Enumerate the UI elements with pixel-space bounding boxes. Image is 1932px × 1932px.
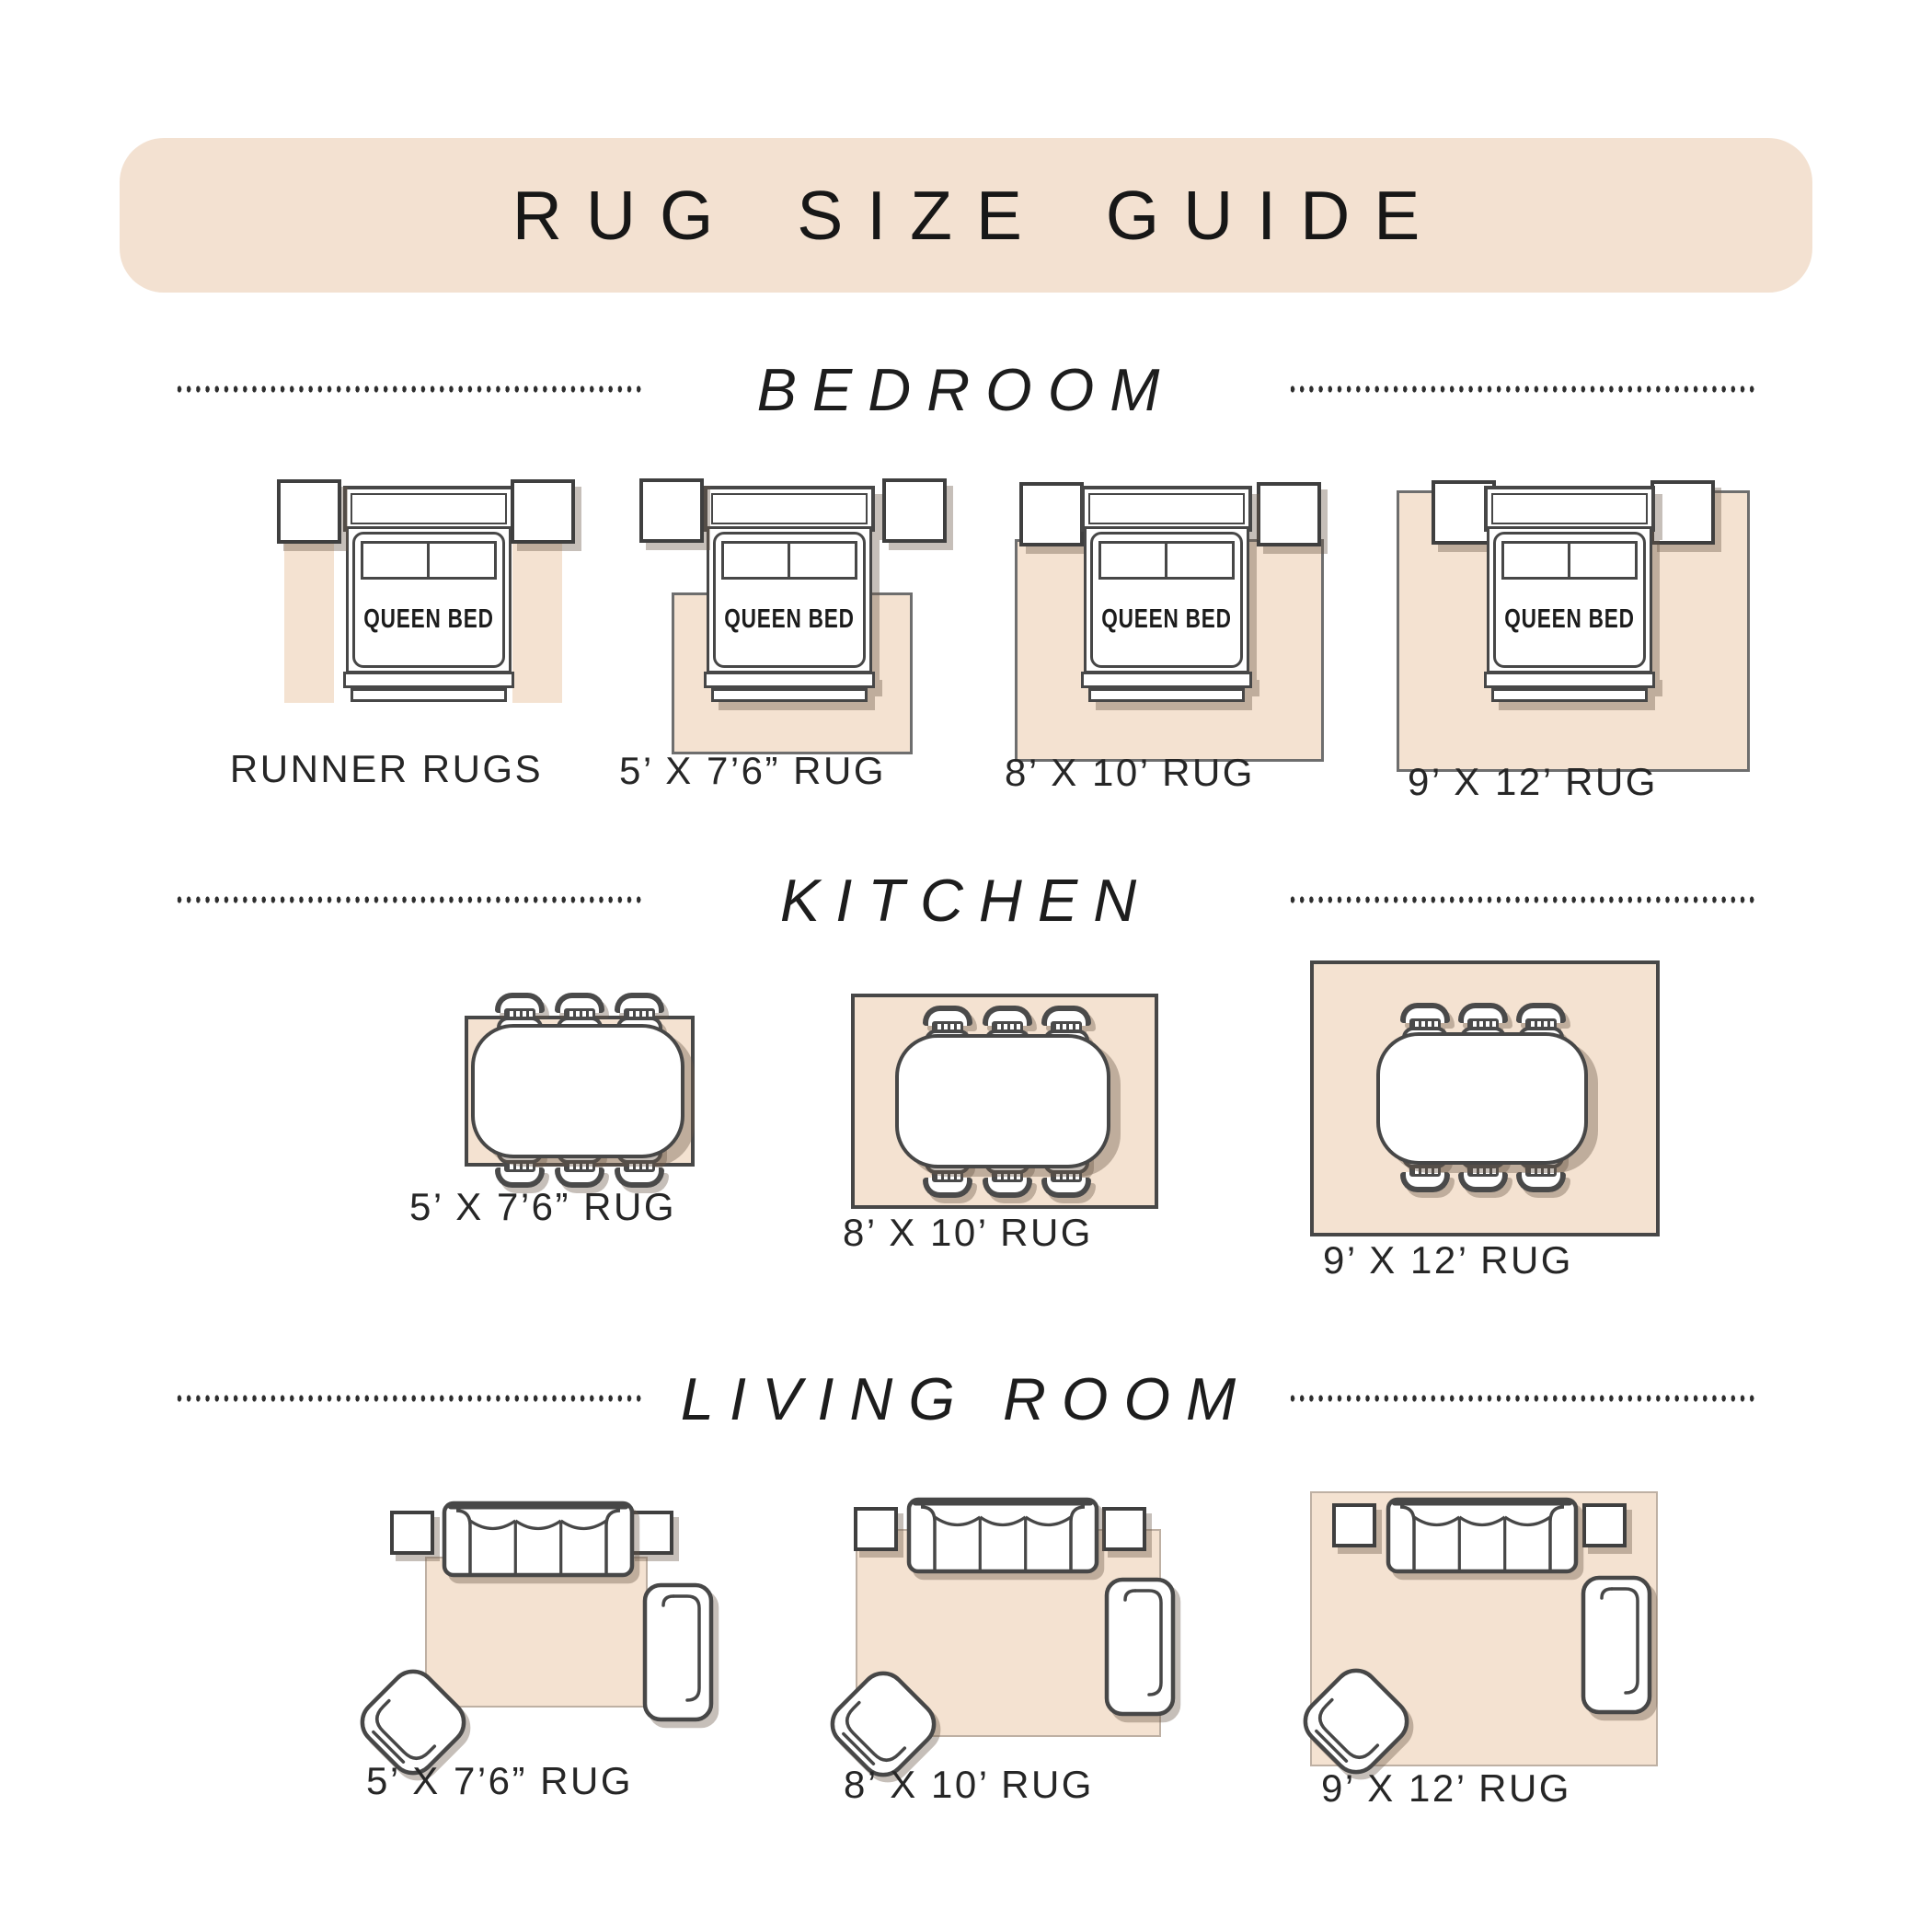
rug-size-label: 5’ X 7’6” RUG: [619, 749, 886, 793]
dotted-divider: [1288, 1393, 1757, 1404]
sofa-icon: [1386, 1494, 1579, 1575]
footboard: [704, 672, 875, 688]
rug-size-label: 5’ X 7’6” RUG: [409, 1185, 676, 1229]
rug-size-label: RUNNER RUGS: [230, 747, 543, 791]
dotted-divider: [175, 1393, 644, 1404]
footboard: [711, 688, 868, 702]
living-room-9x12-diagram: [1310, 1487, 1660, 1800]
rug-size-label: 8’ X 10’ RUG: [844, 1763, 1094, 1807]
headboard: [1484, 486, 1655, 532]
sofa-icon: [906, 1494, 1099, 1575]
mattress: QUEEN BED: [352, 532, 505, 668]
mattress: QUEEN BED: [1090, 532, 1243, 668]
side-table-icon: [1102, 1507, 1146, 1551]
accent-chair-icon: [837, 1678, 929, 1770]
living-room-5x76-diagram: [386, 1487, 718, 1800]
bed-label: QUEEN BED: [1101, 604, 1232, 635]
rug-size-label: 9’ X 12’ RUG: [1408, 760, 1658, 804]
runner-rug: [512, 530, 562, 703]
nightstand-icon: [277, 479, 341, 544]
armchair-icon: [1104, 1577, 1176, 1717]
dining-table-icon: [471, 1024, 684, 1158]
footboard: [343, 672, 514, 688]
side-table-icon: [1332, 1503, 1376, 1547]
bed-label: QUEEN BED: [1504, 604, 1635, 635]
dining-table-icon: [895, 1034, 1110, 1168]
section-title-bedroom: BEDROOM: [644, 355, 1288, 424]
footboard: [351, 688, 507, 702]
footboard: [1484, 672, 1655, 688]
mattress: QUEEN BED: [1493, 532, 1646, 668]
page-title: RUG SIZE GUIDE: [489, 176, 1444, 255]
nightstand-icon: [1650, 480, 1715, 545]
kitchen-8x10-diagram: [851, 972, 1158, 1218]
rug-size-label: 9’ X 12’ RUG: [1321, 1766, 1571, 1811]
dotted-divider: [1288, 384, 1757, 395]
footboard: [1088, 688, 1245, 702]
pillow-icon: [361, 541, 431, 580]
pillow-icon: [427, 541, 497, 580]
nightstand-icon: [882, 478, 947, 543]
footboard: [1081, 672, 1252, 688]
nightstand-icon: [511, 479, 575, 544]
side-table-icon: [854, 1507, 898, 1551]
mattress: QUEEN BED: [713, 532, 866, 668]
accent-chair-icon: [367, 1676, 459, 1768]
footboard: [1491, 688, 1648, 702]
side-table-icon: [390, 1511, 434, 1555]
armchair-icon: [642, 1582, 714, 1722]
bedroom-9x12-diagram: QUEEN BED: [1397, 477, 1744, 771]
nightstand-icon: [1257, 482, 1321, 546]
guide-banner: RUG SIZE GUIDE: [120, 138, 1812, 293]
headboard: [704, 486, 875, 532]
rug-size-label: 8’ X 10’ RUG: [1005, 751, 1255, 795]
bedroom-runner-diagram: QUEEN BED: [275, 477, 571, 716]
rug-size-guide-infographic: RUG SIZE GUIDE BEDROOM QUEEN BED RUNNER …: [0, 0, 1932, 1932]
section-header-kitchen: KITCHEN: [175, 868, 1757, 932]
kitchen-5x76-diagram: [465, 979, 695, 1200]
rug-size-label: 9’ X 12’ RUG: [1323, 1238, 1573, 1282]
section-header-bedroom: BEDROOM: [175, 357, 1757, 421]
section-header-living-room: LIVING ROOM: [175, 1366, 1757, 1431]
headboard: [343, 486, 514, 532]
bed-label: QUEEN BED: [363, 604, 494, 635]
pillow-icon: [1568, 541, 1638, 580]
queen-bed-icon: QUEEN BED: [1081, 486, 1252, 703]
rug-size-label: 5’ X 7’6” RUG: [366, 1759, 633, 1803]
pillow-icon: [1098, 541, 1168, 580]
runner-rug: [284, 530, 334, 703]
nightstand-icon: [639, 478, 704, 543]
pillow-icon: [1165, 541, 1235, 580]
dining-table-icon: [1376, 1032, 1588, 1165]
bed-label: QUEEN BED: [724, 604, 855, 635]
kitchen-9x12-diagram: [1310, 960, 1660, 1236]
queen-bed-icon: QUEEN BED: [343, 486, 514, 703]
accent-chair-icon: [1310, 1675, 1402, 1767]
headboard: [1081, 486, 1252, 532]
living-room-8x10-diagram: [846, 1487, 1178, 1800]
sofa-icon: [442, 1498, 635, 1579]
side-table-icon: [1582, 1503, 1627, 1547]
section-title-living-room: LIVING ROOM: [644, 1364, 1288, 1433]
dotted-divider: [175, 894, 644, 905]
armchair-icon: [1581, 1575, 1652, 1715]
side-table-icon: [629, 1511, 673, 1555]
pillow-icon: [721, 541, 791, 580]
pillow-icon: [788, 541, 857, 580]
queen-bed-icon: QUEEN BED: [704, 486, 875, 703]
bedroom-5x76-diagram: QUEEN BED: [639, 477, 939, 753]
rug-size-label: 8’ X 10’ RUG: [843, 1211, 1093, 1255]
bedroom-8x10-diagram: QUEEN BED: [1015, 477, 1318, 762]
dotted-divider: [1288, 894, 1757, 905]
queen-bed-icon: QUEEN BED: [1484, 486, 1655, 703]
section-title-kitchen: KITCHEN: [644, 866, 1288, 935]
dotted-divider: [175, 384, 644, 395]
pillow-icon: [1501, 541, 1571, 580]
nightstand-icon: [1019, 482, 1084, 546]
